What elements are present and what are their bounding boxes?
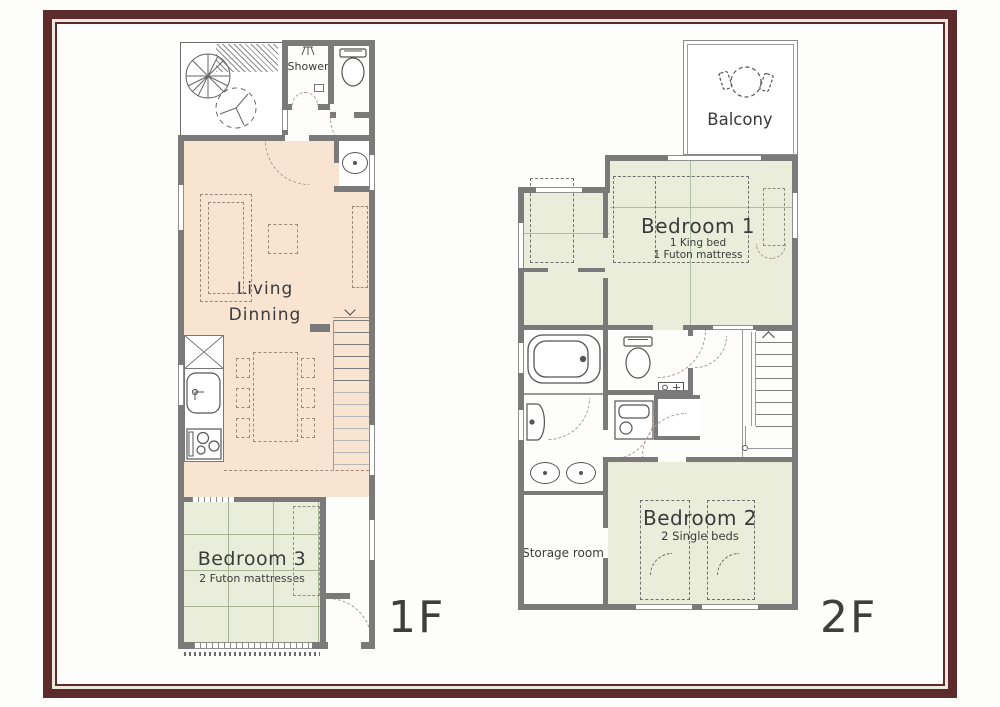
wall xyxy=(603,462,608,528)
wall xyxy=(320,497,326,642)
window xyxy=(702,604,758,610)
dining-table-outline xyxy=(253,352,298,442)
sofa-outline xyxy=(208,202,244,294)
bedroom2-label: Bedroom 2 xyxy=(643,506,757,530)
chair-outline xyxy=(236,388,250,408)
bedroom1-closet-outline xyxy=(763,188,785,246)
wall xyxy=(518,491,603,495)
kitchen-upper-closet-icon xyxy=(184,335,224,369)
washroom-door-swing-icon xyxy=(548,398,590,440)
floor-plan-1f: Shower Living Dinning xyxy=(178,40,375,665)
wall xyxy=(518,325,653,330)
washbasin-icon xyxy=(566,462,596,484)
window xyxy=(369,425,375,475)
wall xyxy=(578,268,605,272)
shower-label: Shower xyxy=(288,60,329,73)
storage-label: Storage room xyxy=(522,546,604,560)
wall xyxy=(688,330,693,336)
stairs-path-line xyxy=(747,448,792,449)
floor-plan-2f: Balcony Bedroom 1 1 King bed 1 Futon mat… xyxy=(518,38,800,618)
toilet-icon xyxy=(621,336,655,382)
bathroom-divider-line xyxy=(524,393,603,395)
bedroom3-sublabel: 2 Futon mattresses xyxy=(199,572,305,585)
wall xyxy=(608,390,693,395)
window xyxy=(536,187,582,193)
wall xyxy=(334,141,339,163)
window xyxy=(282,110,288,130)
floor2-tag: 2F xyxy=(820,592,877,643)
chair-outline xyxy=(236,358,250,378)
bush-icon xyxy=(214,86,258,130)
shower-folding-door-icon xyxy=(292,92,305,105)
shower-folding-door-icon xyxy=(305,92,318,105)
closet-outline xyxy=(352,206,368,288)
wall xyxy=(312,642,328,649)
bedroom1-label: Bedroom 1 xyxy=(641,214,755,238)
bedroom2-sublabel: 2 Single beds xyxy=(661,530,739,544)
wall xyxy=(330,112,336,118)
entrance-door-swing-icon xyxy=(328,598,372,642)
balcony-table-icon xyxy=(716,60,776,108)
bedroom1-door-swing-icon xyxy=(658,330,706,378)
bedroom3-label: Bedroom 3 xyxy=(198,548,307,571)
bedroom3-closet-outline xyxy=(293,506,320,596)
bedroom1-sublabel2: 1 Futon mattress xyxy=(653,249,742,262)
window xyxy=(636,604,692,610)
stairs-rail-line xyxy=(751,332,752,426)
shower-drain xyxy=(314,84,324,92)
wall xyxy=(603,278,608,330)
side-table-outline xyxy=(268,224,298,254)
floor-plan-canvas: { "document": { "type": "house floor pla… xyxy=(0,0,1000,707)
chair-outline xyxy=(301,418,315,438)
chair-outline xyxy=(301,388,315,408)
balcony-label: Balcony xyxy=(707,110,772,130)
wall xyxy=(524,268,548,272)
window xyxy=(178,365,184,405)
stairs-landing-line xyxy=(333,317,369,318)
window xyxy=(518,343,524,373)
washbasin-icon xyxy=(530,462,560,484)
wall xyxy=(603,193,608,238)
window xyxy=(369,520,375,560)
wall xyxy=(603,558,608,604)
toilet-icon xyxy=(338,48,368,90)
window xyxy=(518,410,524,440)
chair-outline xyxy=(236,418,250,438)
porch-band xyxy=(184,652,320,656)
chair-outline xyxy=(301,358,315,378)
sliding-door xyxy=(713,325,753,330)
floor1-tag: 1F xyxy=(388,592,445,643)
stairs-up xyxy=(333,320,369,390)
living-label-line2: Dinning xyxy=(229,302,302,328)
balcony-sliding-door xyxy=(668,155,761,161)
stairs-under-dashed xyxy=(333,392,369,472)
wall xyxy=(603,457,658,462)
kitchen-sink-icon xyxy=(186,372,222,414)
window xyxy=(178,185,184,230)
wall xyxy=(328,40,334,104)
wall xyxy=(318,104,330,110)
wall xyxy=(310,324,330,332)
stairs-down xyxy=(756,330,792,432)
vanity-basin-icon xyxy=(525,402,545,442)
stairs-rail-line xyxy=(333,320,334,470)
washbasin-icon xyxy=(342,152,368,174)
bedroom1-sublabel1: 1 King bed xyxy=(670,237,726,250)
wall xyxy=(184,642,194,649)
bathtub-icon xyxy=(527,334,601,384)
shower-head-icon xyxy=(300,46,316,56)
window xyxy=(518,223,524,268)
window xyxy=(369,155,375,190)
window xyxy=(194,642,312,649)
wall xyxy=(361,642,375,649)
wall xyxy=(603,330,608,430)
wall xyxy=(686,457,798,462)
wall xyxy=(309,135,375,141)
stove-icon xyxy=(186,428,222,460)
window xyxy=(792,193,798,238)
wall xyxy=(282,104,292,110)
sliding-window xyxy=(192,497,234,502)
stair-opening-line xyxy=(742,330,743,462)
